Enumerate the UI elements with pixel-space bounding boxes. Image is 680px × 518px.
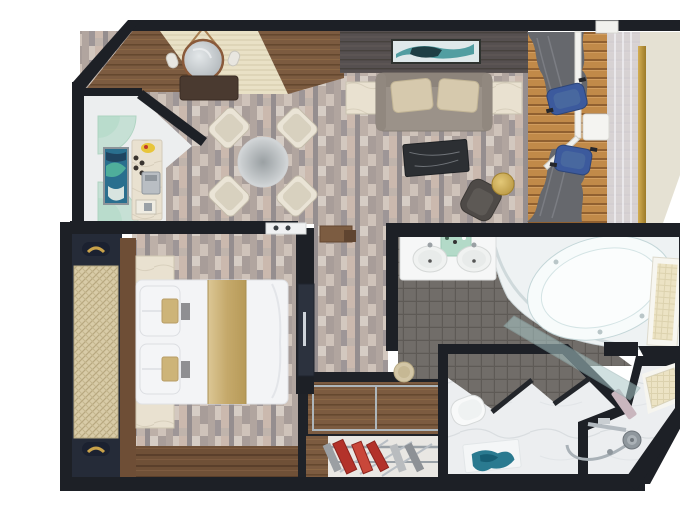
bed-runner xyxy=(208,280,246,404)
sofa-pillow-right xyxy=(437,78,480,112)
floor-plan xyxy=(40,16,680,502)
sofa xyxy=(376,73,492,131)
bedroom xyxy=(70,234,298,482)
wall-right-shower xyxy=(675,352,680,414)
walk-in-closet xyxy=(298,372,450,486)
door-handle xyxy=(303,312,306,346)
bathroom-window xyxy=(647,257,680,347)
pantry-art xyxy=(104,148,128,204)
headboard-panel xyxy=(120,238,136,478)
fruit-bowl xyxy=(141,143,155,153)
wall-pantry-top xyxy=(80,88,142,96)
tv-art xyxy=(392,40,480,63)
entry-console xyxy=(180,76,238,100)
dining-table xyxy=(238,137,288,187)
bedroom-wood-floor xyxy=(132,446,298,482)
gold-side-table xyxy=(492,173,514,195)
wall-stub xyxy=(604,342,638,356)
side-table-left xyxy=(346,82,376,114)
side-table-right xyxy=(492,82,522,114)
media-wall xyxy=(340,31,528,73)
shower-control xyxy=(607,449,613,455)
deck-table xyxy=(583,114,609,140)
wall-left-lower xyxy=(60,222,72,488)
ceiling-unit xyxy=(596,21,618,33)
wardrobe-handle-bottom xyxy=(82,442,110,456)
coffee-table xyxy=(403,139,470,176)
wall-bathroom-top xyxy=(386,223,680,237)
wardrobe-handle-top xyxy=(82,242,110,256)
sofa-pillow-left xyxy=(390,78,433,113)
vanity xyxy=(400,230,496,280)
wall-bedroom-top xyxy=(70,221,298,234)
wall-bathroom-left xyxy=(386,223,398,351)
toilet-rug xyxy=(463,439,522,473)
cane-wardrobe-doors xyxy=(74,266,118,438)
floor-plan-canvas xyxy=(40,16,680,502)
bed xyxy=(136,280,288,404)
closet-clothes xyxy=(306,436,444,480)
handrail-post xyxy=(638,46,646,228)
bar-counter xyxy=(132,140,162,220)
wall-left-upper xyxy=(72,82,84,232)
wall-bottom xyxy=(60,477,645,491)
